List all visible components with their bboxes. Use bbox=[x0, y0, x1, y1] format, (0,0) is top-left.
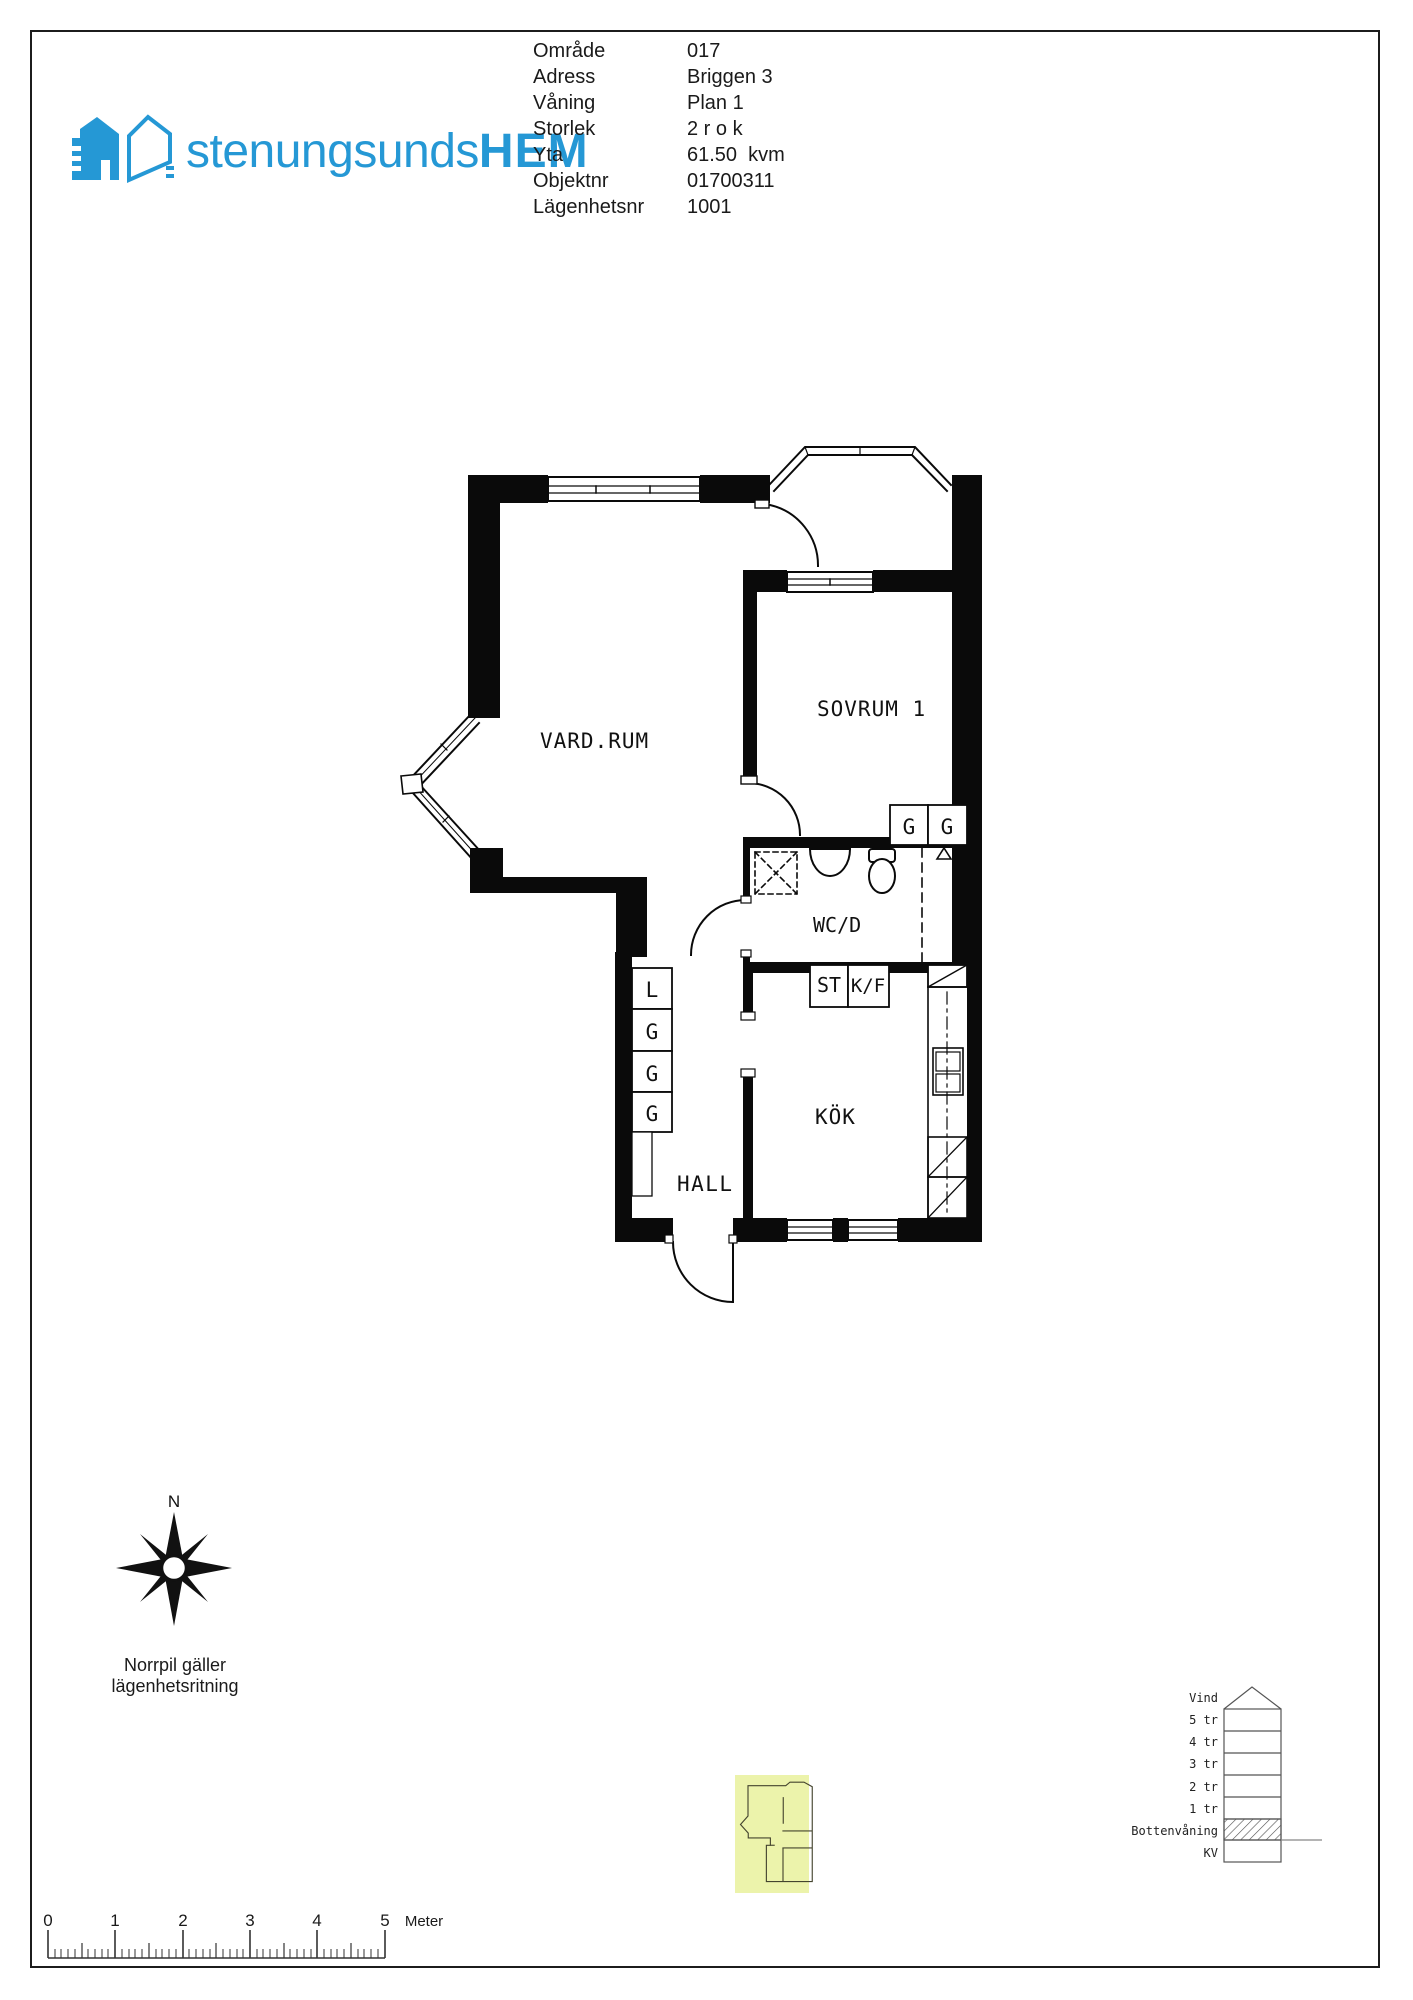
opening-hall-kok bbox=[741, 1012, 755, 1077]
closet-label: L bbox=[646, 978, 659, 1002]
building-floor-label: 1 tr bbox=[1189, 1802, 1218, 1816]
door-balcony bbox=[755, 500, 818, 566]
window-sovrum bbox=[787, 572, 873, 592]
document-page: stenungsundsHEM Område 017 Adress Brigge… bbox=[0, 0, 1413, 2000]
compass-rose: N Norrpil gäller lägenhetsritning bbox=[111, 1492, 238, 1696]
scale-tick-label: 4 bbox=[312, 1911, 321, 1930]
vent-triangle-icon bbox=[937, 848, 951, 859]
compass-north-label: N bbox=[168, 1492, 180, 1511]
kitchen-unit-label-st: ST bbox=[817, 973, 841, 997]
scale-unit-label: Meter bbox=[405, 1913, 443, 1930]
building-floor-label: 5 tr bbox=[1189, 1713, 1218, 1727]
shower-icon bbox=[755, 852, 797, 894]
room-label-sovrum: SOVRUM 1 bbox=[817, 697, 926, 721]
closet-label: G bbox=[646, 1020, 659, 1044]
closets-sovrum bbox=[890, 805, 967, 845]
compass-caption-line1: Norrpil gäller bbox=[124, 1655, 226, 1675]
building-floor-label: KV bbox=[1204, 1846, 1218, 1860]
building-floor-label: Vind bbox=[1189, 1691, 1218, 1705]
kitchen-counter bbox=[928, 987, 967, 1218]
drawing-layer: G G ST K/F bbox=[0, 0, 1413, 2000]
mini-plan-thumbnail bbox=[735, 1775, 812, 1893]
building-floor-label: 4 tr bbox=[1189, 1735, 1218, 1749]
building-section-diagram: Vind 5 tr 4 tr 3 tr 2 tr 1 tr Bottenvåni… bbox=[1131, 1687, 1322, 1862]
toilet-icon bbox=[869, 849, 895, 893]
room-label-wc: WC/D bbox=[813, 913, 861, 937]
door-entrance bbox=[665, 1235, 737, 1302]
window-vardagsrum-bay bbox=[401, 714, 481, 860]
kitchen-unit-label-kf: K/F bbox=[851, 975, 885, 997]
window-vardagsrum-top bbox=[548, 477, 700, 501]
closet-label: G bbox=[903, 815, 916, 839]
floor-plan: G G ST K/F bbox=[401, 447, 982, 1302]
sink-icon bbox=[810, 849, 850, 876]
compass-caption-line2: lägenhetsritning bbox=[111, 1676, 238, 1696]
plan-walls bbox=[468, 475, 982, 1242]
closet-label: G bbox=[646, 1102, 659, 1126]
door-sovrum bbox=[741, 776, 800, 835]
closet-label: G bbox=[646, 1062, 659, 1086]
scale-tick-label: 1 bbox=[110, 1911, 119, 1930]
room-label-hall: HALL bbox=[677, 1172, 734, 1196]
building-floor-label: Bottenvåning bbox=[1131, 1824, 1218, 1838]
building-floor-highlight bbox=[1224, 1819, 1281, 1840]
scale-tick-label: 5 bbox=[380, 1911, 389, 1930]
window-kok-2 bbox=[848, 1220, 898, 1240]
window-kok-1 bbox=[787, 1220, 833, 1240]
scale-bar: 0 1 2 3 4 5 Meter bbox=[43, 1911, 443, 1958]
scale-tick-label: 2 bbox=[178, 1911, 187, 1930]
scale-tick-label: 0 bbox=[43, 1911, 52, 1930]
balcony-glazing bbox=[770, 447, 951, 491]
building-roof bbox=[1224, 1687, 1281, 1709]
scale-tick-label: 3 bbox=[245, 1911, 254, 1930]
door-wc bbox=[691, 896, 751, 957]
room-label-kok: KÖK bbox=[815, 1104, 856, 1129]
building-floor-label: 3 tr bbox=[1189, 1757, 1218, 1771]
closet-label: G bbox=[941, 815, 954, 839]
building-floor-label: 2 tr bbox=[1189, 1780, 1218, 1794]
room-label-vardagsrum: VARD.RUM bbox=[540, 729, 649, 753]
